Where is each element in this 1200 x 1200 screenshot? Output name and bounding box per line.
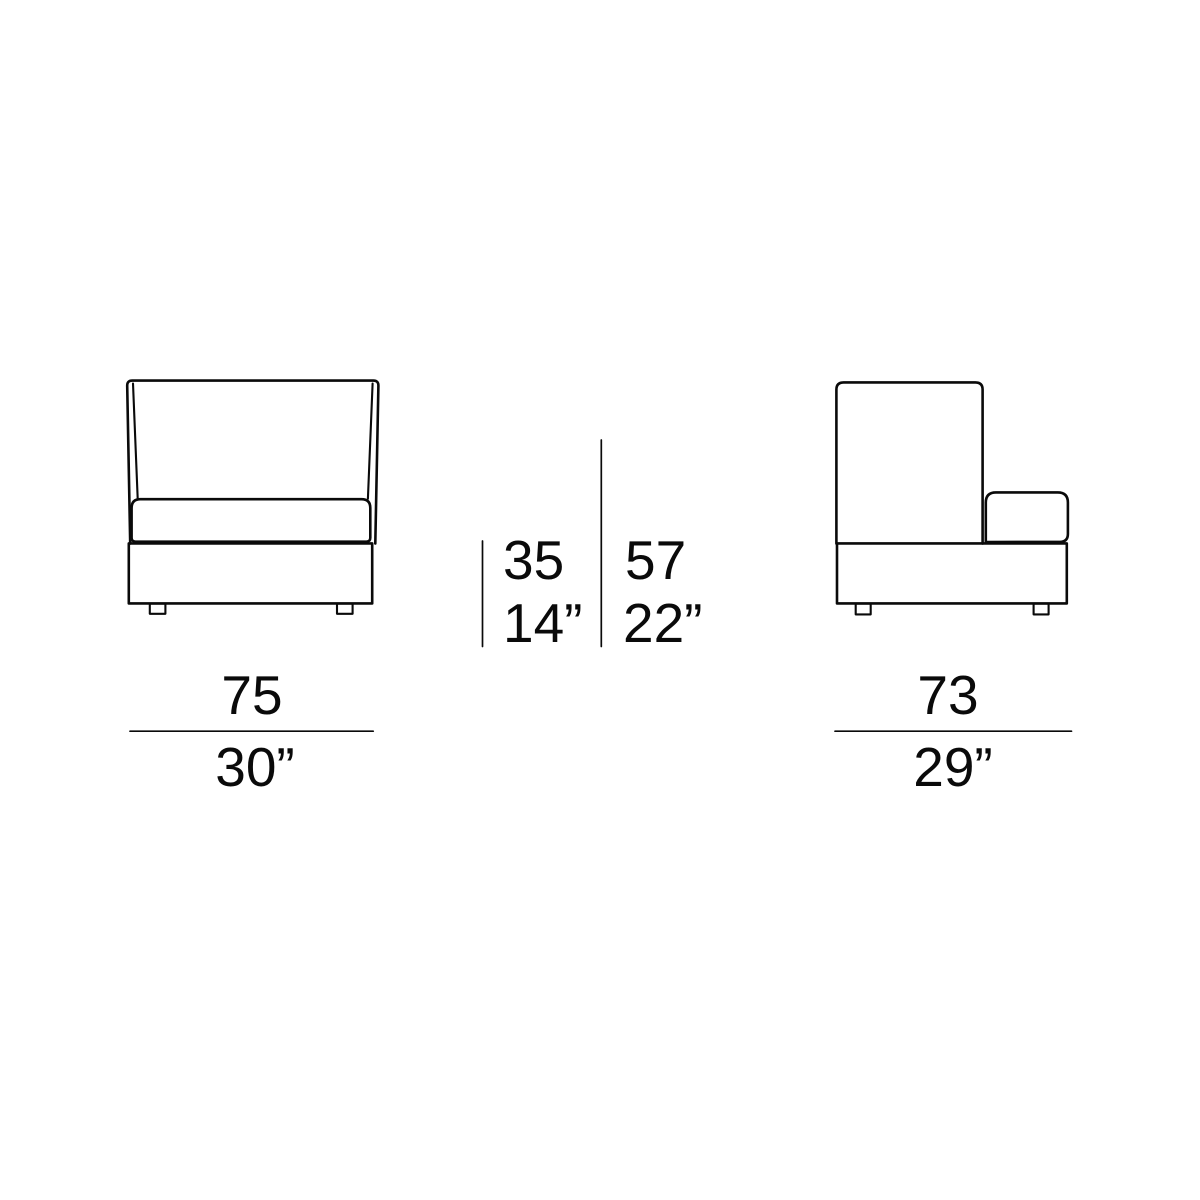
front-seat-cushion <box>132 499 371 542</box>
side-width-cm-label: 73 <box>917 668 978 723</box>
front-backrest-outline <box>127 381 378 544</box>
front-base <box>129 543 372 603</box>
side-view-drawing <box>836 382 1068 614</box>
overall-height-inches-label: 22” <box>623 596 703 651</box>
front-view-drawing <box>127 381 378 614</box>
front-foot-right <box>337 604 353 614</box>
seat-height-inches-label: 14” <box>503 596 583 651</box>
side-foot-right <box>1034 604 1049 615</box>
front-width-cm-label: 75 <box>221 668 282 723</box>
front-width-inches-label: 30” <box>215 740 295 795</box>
side-width-inches-label: 29” <box>913 740 993 795</box>
front-backrest-seam-right <box>368 384 373 499</box>
side-seat-cushion <box>986 492 1068 542</box>
dimension-diagram: 35 14” 57 22” 75 30” 73 29” <box>0 0 1200 1200</box>
side-backrest-outline <box>836 382 982 543</box>
side-foot-left <box>856 604 871 615</box>
diagram-svg <box>0 0 1200 1200</box>
front-foot-left <box>150 604 166 614</box>
seat-height-cm-label: 35 <box>503 533 564 588</box>
side-base <box>837 543 1067 603</box>
front-backrest-seam-left <box>133 384 138 499</box>
overall-height-cm-label: 57 <box>625 533 686 588</box>
